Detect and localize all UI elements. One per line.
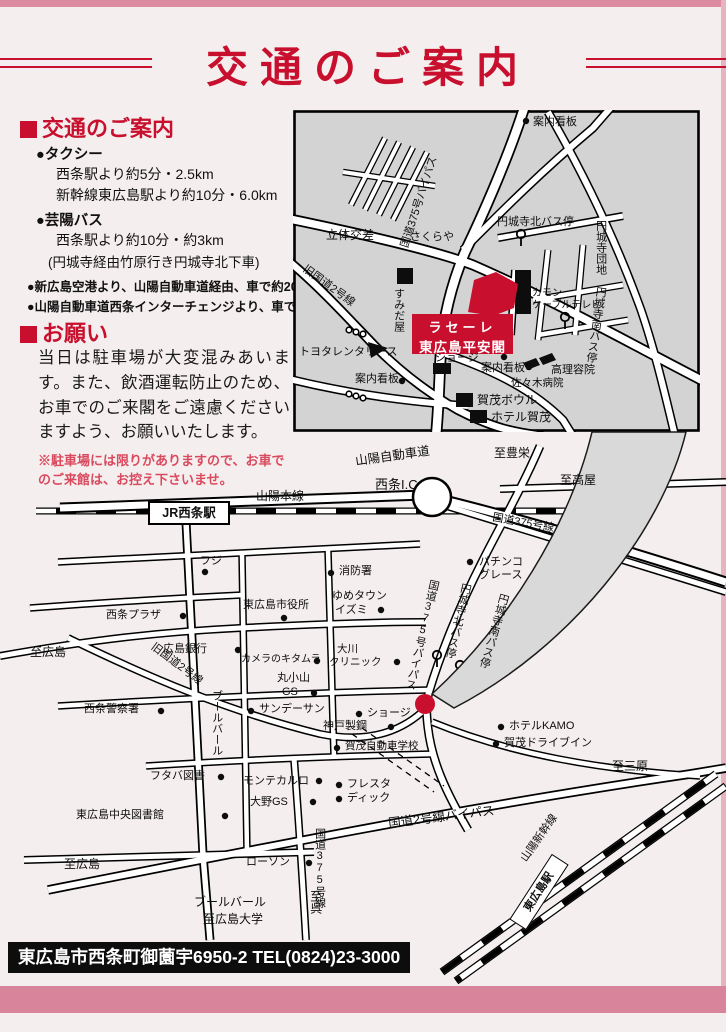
sumidaya-building [397, 268, 413, 284]
label-to-hiroshima-univ: 至広島大学 [203, 913, 263, 927]
label-toyota-rental: トヨタレンタリース [299, 346, 397, 359]
title-rule-right [586, 58, 726, 68]
label-shoji-detail: ショージ [435, 352, 479, 365]
hotel-kamo-building [470, 410, 487, 423]
label-okawa-1: 大川 [337, 643, 358, 655]
label-kamo-bowl: 賀茂ボウル [477, 394, 537, 408]
label-signboard-top: 案内看板 [533, 116, 577, 129]
label-sunday-sun: サンデーサン [259, 703, 325, 716]
label-kobe-steel: 神戸製鋼 [323, 720, 367, 733]
label-kamo-drivein: 賀茂ドライブイン [504, 737, 592, 750]
label-sasaki-hospital: 佐々木病院 [511, 377, 564, 389]
red-square-bullet-icon [20, 121, 37, 138]
label-okawa-2: クリニック [329, 656, 382, 668]
address-bar: 東広島市西条町御薗宇6950-2 TEL(0824)23-3000 [8, 942, 410, 973]
label-ohno-gs: 大野GS [250, 796, 288, 809]
swoosh-band [432, 432, 686, 708]
label-boulevard-bottom: ブールバール [194, 896, 266, 910]
label-hotel-kamo: ホテル賀茂 [491, 411, 551, 425]
label-police: 西条警察署 [84, 703, 139, 716]
kamo-bowl-building [456, 393, 473, 407]
label-boulevard: ブールバール [210, 690, 223, 756]
label-saijo-plaza: 西条プラザ [106, 609, 161, 622]
label-kitamura: カメラのキタムラ [241, 654, 321, 666]
request-heading-text: お願い [42, 321, 108, 346]
guide-item-taxi: ●タクシー [36, 143, 103, 164]
label-signboard-left: 案内看板 [355, 373, 399, 386]
label-futaba-books: フタバ図書 [150, 770, 205, 783]
label-signboard-center: 案内看板 [481, 362, 525, 375]
label-enjoji-danchi: 円城寺団地 [594, 220, 607, 275]
jr-saijo-station-label: JR西条駅 [162, 506, 215, 520]
guide-item-bus-line2: (円城寺経由竹原行き円城寺北下車) [48, 251, 260, 271]
label-shoji-area: ショージ [367, 707, 411, 720]
top-pink-strip [0, 0, 726, 7]
guide-item-taxi-line2: 新幹線東広島駅より約10分・6.0km [56, 185, 277, 205]
label-kamo-driving-school: 賀茂自動車学校 [345, 740, 419, 752]
request-heading: お願い [20, 316, 108, 348]
label-marukoyama-1: 丸小山 [277, 672, 310, 685]
guide-item-bus: ●芸陽バス [36, 209, 103, 230]
swoosh-pointer [380, 428, 726, 720]
label-pachinko-1: パチンコ [479, 556, 523, 569]
jr-saijo-station-box: JR西条駅 [148, 501, 230, 525]
page-title: 交通のご案内 [150, 34, 586, 95]
label-kamon-cable-2: ケーブルテレビ [532, 300, 601, 312]
guide-item-ic: ●山陽自動車道西条インターチェンジより、車で約5分 [27, 296, 328, 315]
request-body: 当日は駐車場が大変混みあいます。また、飲酒運転防止のため、お車でのご来閣をご遠慮… [38, 346, 290, 445]
title-rule-left [0, 58, 152, 68]
venue-red-dot [415, 694, 435, 714]
kamon-building [515, 270, 531, 314]
label-yume-town-2: イズミ [335, 604, 368, 617]
label-grade-crossing: 立体交差 [326, 229, 374, 243]
venue-label-box: ラセーレ 東広島平安閣 [412, 314, 513, 354]
guide-heading-text: 交通のご案内 [42, 116, 174, 141]
label-fresta: フレスタ [347, 778, 391, 791]
label-sanyo-line: 山陽本線 [256, 490, 304, 504]
shoji-building [433, 363, 451, 374]
guide-heading: 交通のご案内 [20, 111, 174, 143]
label-hotel-kamo-area: ホテルKAMO [509, 720, 574, 733]
label-to-kure: 至呉 [308, 890, 322, 914]
label-kamon-cable-1: カモン [532, 288, 562, 300]
label-central-library: 東広島中央図書館 [76, 809, 164, 822]
label-fire-station: 消防署 [339, 565, 372, 578]
label-pachinko-2: グレース [479, 569, 522, 582]
label-lawson: ローソン [246, 856, 290, 869]
guide-item-airport: ●新広島空港より、山陽自動車道経由、車で約20分 [27, 276, 310, 295]
label-enjoji-kita-bus-stop: 円城寺北バス停 [497, 216, 574, 229]
label-sumidaya: すみだ屋 [392, 288, 405, 332]
label-fuji: フジ [200, 555, 222, 568]
red-square-bullet-icon [20, 326, 37, 343]
label-yume-town-1: ゆめタウン [332, 590, 387, 603]
label-to-hiroshima-south: 至広島 [64, 858, 100, 872]
label-monte-carlo: モンテカルロ [243, 775, 309, 788]
label-sakuraya: さくらや [410, 231, 454, 244]
label-to-mihara: 至三原 [612, 760, 648, 774]
bottom-pink-band [0, 986, 726, 1013]
guide-item-bus-line1: 西条駅より約10分・約3km [56, 230, 224, 250]
label-to-hiroshima-west: 至広島 [30, 646, 66, 660]
label-to-takaya: 至高屋 [560, 474, 596, 488]
label-city-hall: 東広島市役所 [243, 599, 309, 612]
label-saijo-ic: 西条I.C [375, 478, 418, 493]
label-barber: 高理容院 [551, 364, 595, 377]
label-to-toyosaka: 至豊栄 [494, 447, 530, 461]
label-dick: ディック [347, 792, 390, 805]
venue-name-line1: ラセーレ [412, 314, 513, 336]
guide-item-taxi-line1: 西条駅より約5分・2.5km [56, 164, 214, 184]
label-marukoyama-2: GS [282, 686, 298, 699]
leaflet-page: 交通のご案内 交通のご案内 ●タクシー 西条駅より約5分・2.5km 新幹線東広… [0, 0, 726, 1032]
